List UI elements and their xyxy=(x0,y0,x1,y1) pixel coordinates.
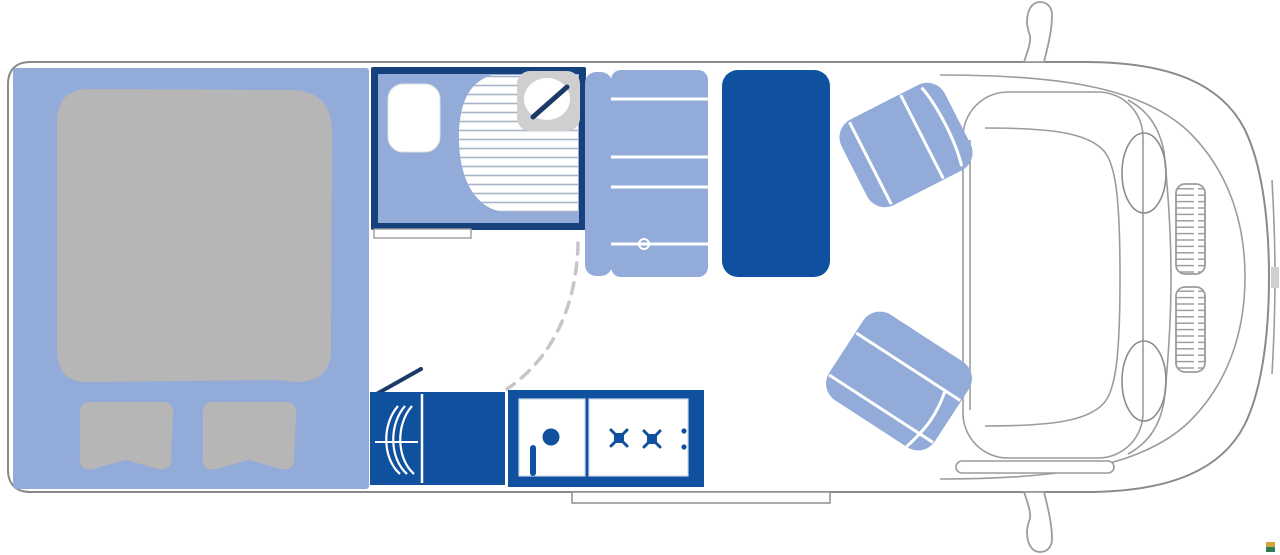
motorhome-floorplan xyxy=(0,0,1280,555)
pillow-right xyxy=(203,402,297,470)
motorhome-floorplan-canvas xyxy=(0,0,1280,555)
bathroom-sliding-door xyxy=(374,229,471,238)
washbasin-bowl xyxy=(524,78,570,120)
bed-duvet xyxy=(57,89,332,382)
bathroom xyxy=(371,67,586,238)
front-plate xyxy=(1271,267,1279,288)
watermark-bottom xyxy=(1266,547,1275,552)
side-mirror-bottom-icon xyxy=(1024,492,1052,552)
entry-step xyxy=(572,492,830,503)
sink-faucet-icon xyxy=(530,445,536,476)
kitchen xyxy=(370,390,704,487)
pillow-left xyxy=(80,402,174,470)
bench-seat xyxy=(585,70,708,277)
sink-drain-icon xyxy=(543,429,560,446)
watermark-top xyxy=(1266,542,1275,547)
cab-side-step xyxy=(956,461,1114,473)
dinette-table xyxy=(722,70,830,277)
watermark xyxy=(1266,542,1275,552)
cowl-vent-bottom xyxy=(1176,287,1205,372)
heater-cabinet-block xyxy=(370,392,505,485)
hob-knob-bottom xyxy=(681,444,686,449)
toilet-icon xyxy=(388,84,440,152)
hob-panel xyxy=(589,399,688,476)
side-mirror-top-icon xyxy=(1024,2,1052,62)
bench-backrest xyxy=(585,72,612,276)
bed-area xyxy=(13,68,369,489)
bench-cushions xyxy=(611,70,708,277)
hob-knob-top xyxy=(681,428,686,433)
cowl-vent-top xyxy=(1176,184,1205,274)
